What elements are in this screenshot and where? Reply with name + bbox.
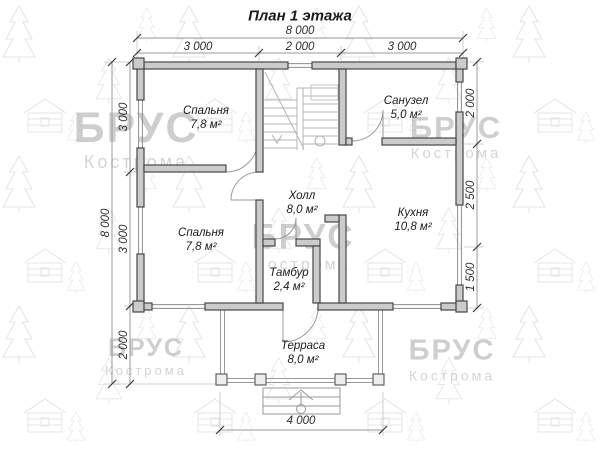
staircase <box>264 72 338 150</box>
room-area: 2,4 м² <box>269 281 308 295</box>
dim-top-total: 8 000 <box>286 25 315 37</box>
room-label-bathroom: Санузел 5,0 м² <box>384 95 429 123</box>
room-name: Санузел <box>384 95 429 109</box>
room-label-bedroom-1: Спальня 7,8 м² <box>183 105 229 133</box>
room-label-vestibule: Тамбур 2,4 м² <box>269 267 308 295</box>
room-label-hall: Холл 8,0 м² <box>287 190 318 218</box>
room-name: Спальня <box>178 227 224 241</box>
room-area: 8,0 м² <box>281 354 325 368</box>
plan-linework <box>0 0 600 450</box>
terrace-posts <box>216 374 384 385</box>
room-name: Холл <box>287 190 318 204</box>
dim-bottom: 4 000 <box>287 415 316 427</box>
room-area: 7,8 м² <box>178 241 224 255</box>
room-name: Терраса <box>281 340 325 354</box>
room-name: Тамбур <box>269 267 308 281</box>
entrance-steps <box>263 388 340 414</box>
dim-left-total: 8 000 <box>100 209 112 238</box>
room-area: 5,0 м² <box>384 109 429 123</box>
page-title: План 1 этажа <box>248 8 352 25</box>
room-area: 7,8 м² <box>183 119 229 133</box>
room-label-terrace: Терраса 8,0 м² <box>281 340 325 368</box>
room-label-bedroom-2: Спальня 7,8 м² <box>178 227 224 255</box>
room-name: Кухня <box>394 207 431 221</box>
dim-top-segment-1: 3 000 <box>184 41 213 53</box>
dim-right-segment-3: 1 500 <box>465 263 477 292</box>
dim-left-segment-2: 3 000 <box>118 225 130 254</box>
dim-left-segment-1: 3 000 <box>118 103 130 132</box>
room-name: Спальня <box>183 105 229 119</box>
dim-left-segment-3: 2 000 <box>118 331 130 360</box>
room-label-kitchen: Кухня 10,8 м² <box>394 207 431 235</box>
room-area: 10,8 м² <box>394 221 431 235</box>
room-area: 8,0 м² <box>287 204 318 218</box>
dim-right-segment-2: 2 500 <box>465 181 477 210</box>
dim-top-segment-3: 3 000 <box>388 41 417 53</box>
dim-right-segment-1: 2 000 <box>465 89 477 118</box>
dim-top-segment-2: 2 000 <box>286 41 315 53</box>
floor-plan-canvas: БРУС Кострома БРУС Кострома БРУС Костром… <box>0 0 600 450</box>
